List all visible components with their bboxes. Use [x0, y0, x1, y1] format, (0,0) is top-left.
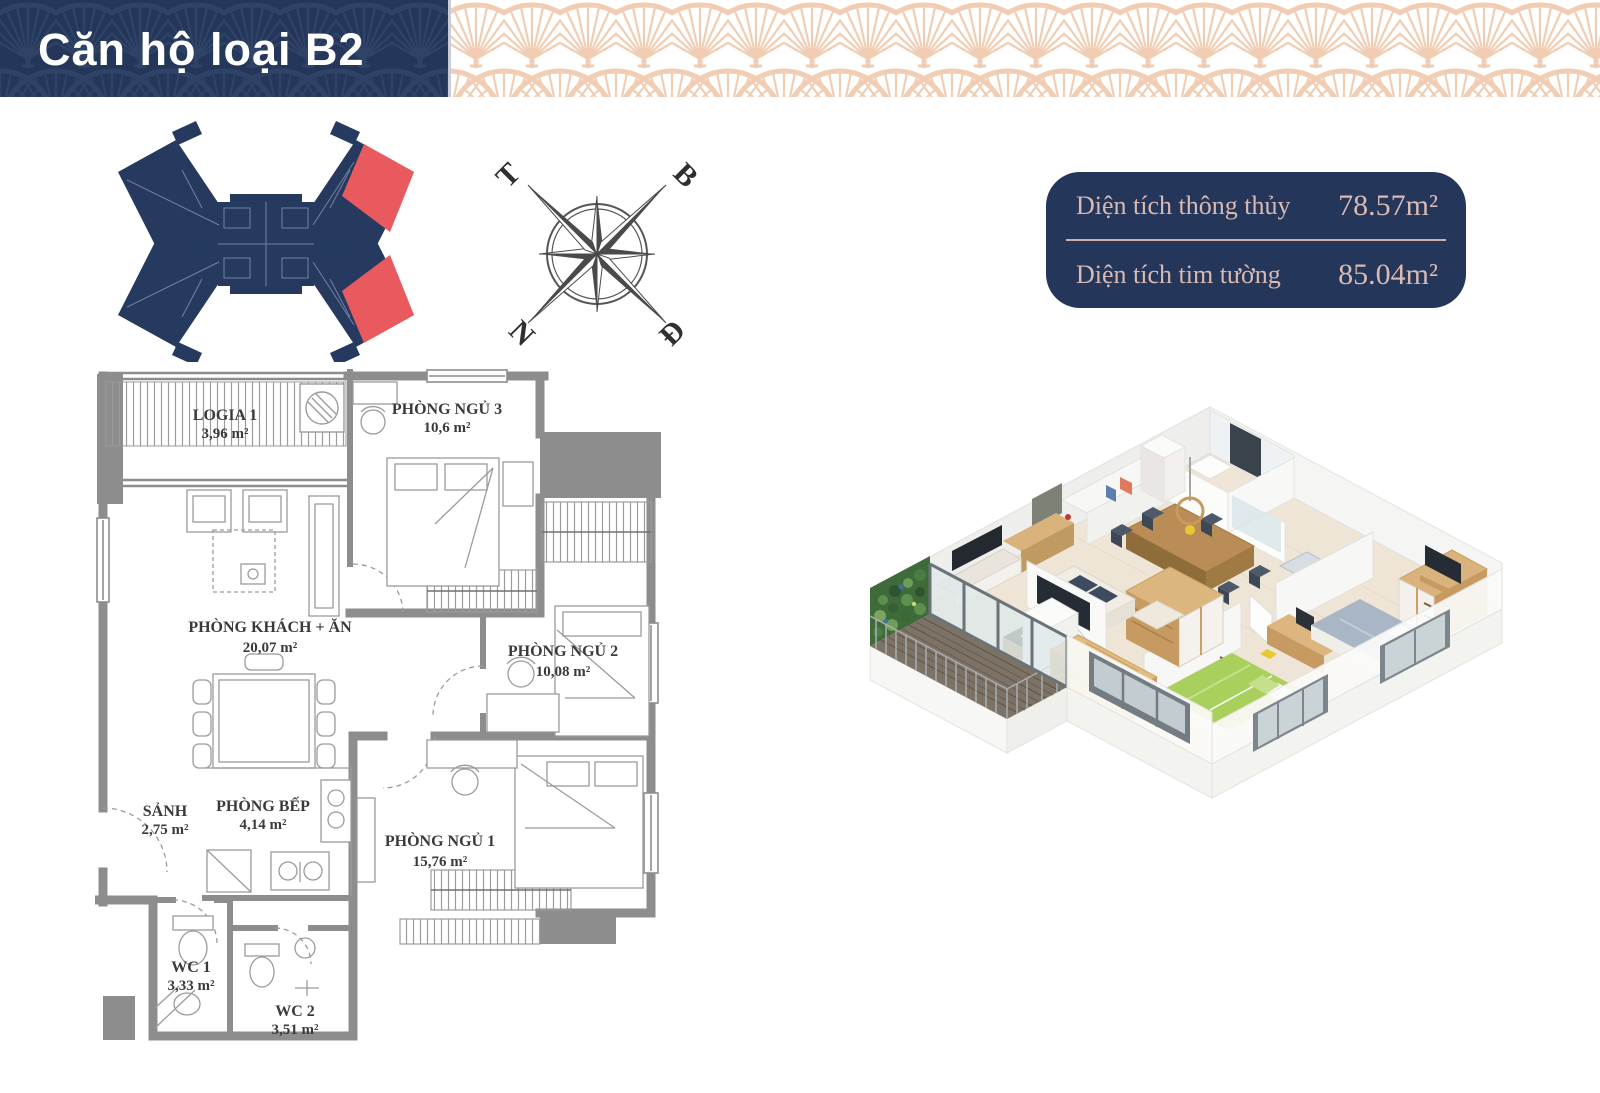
area-label: Diện tích thông thủy — [1046, 191, 1338, 221]
room-label: WC 2 — [275, 1003, 315, 1020]
refrigerator — [1141, 435, 1185, 502]
area-row: Diện tích tim tường 85.04m² — [1046, 241, 1466, 308]
compass-rose-icon: T B N Đ — [485, 142, 709, 366]
floor-plan-2d: LOGIA 1 3,96 m² PHÒNG NGỦ 3 10,6 m² PHÒN… — [95, 368, 745, 1060]
page-title: Căn hộ loại B2 — [38, 0, 438, 97]
building-site-plan — [92, 110, 428, 362]
compass-west-label: T — [490, 157, 527, 194]
compass-north-label: B — [667, 157, 704, 194]
room-label: PHÒNG NGỦ 1 — [385, 831, 495, 850]
compass-south-label: N — [502, 314, 541, 353]
area-value: 78.57m² — [1338, 189, 1466, 223]
room-area: 3,51 m² — [272, 1022, 319, 1038]
room-label: PHÒNG NGỦ 2 — [508, 641, 618, 660]
compass-east-label: Đ — [653, 314, 692, 353]
room-area: 10,6 m² — [424, 420, 471, 436]
page: Căn hộ loại B2 — [0, 0, 1600, 1093]
room-area: 3,96 m² — [202, 426, 249, 442]
room-label: LOGIA 1 — [193, 407, 257, 424]
room-label: SẢNH — [143, 801, 188, 820]
room-label: PHÒNG BẾP — [216, 796, 310, 815]
room-area: 15,76 m² — [413, 854, 468, 870]
area-label: Diện tích tim tường — [1046, 260, 1338, 290]
apartment-3d-render — [780, 395, 1550, 1055]
room-label: PHÒNG NGỦ 3 — [392, 399, 502, 418]
room-area: 20,07 m² — [243, 640, 298, 656]
area-value: 85.04m² — [1338, 258, 1466, 292]
room-area: 2,75 m² — [142, 822, 189, 838]
room-label: PHÒNG KHÁCH + ĂN — [188, 617, 352, 636]
area-row: Diện tích thông thủy 78.57m² — [1046, 172, 1466, 239]
room-label: WC 1 — [171, 959, 211, 976]
room-area: 4,14 m² — [240, 817, 287, 833]
room-area: 10,08 m² — [536, 664, 591, 680]
room-area: 3,33 m² — [168, 978, 215, 994]
area-summary-box: Diện tích thông thủy 78.57m² Diện tích t… — [1046, 172, 1466, 308]
